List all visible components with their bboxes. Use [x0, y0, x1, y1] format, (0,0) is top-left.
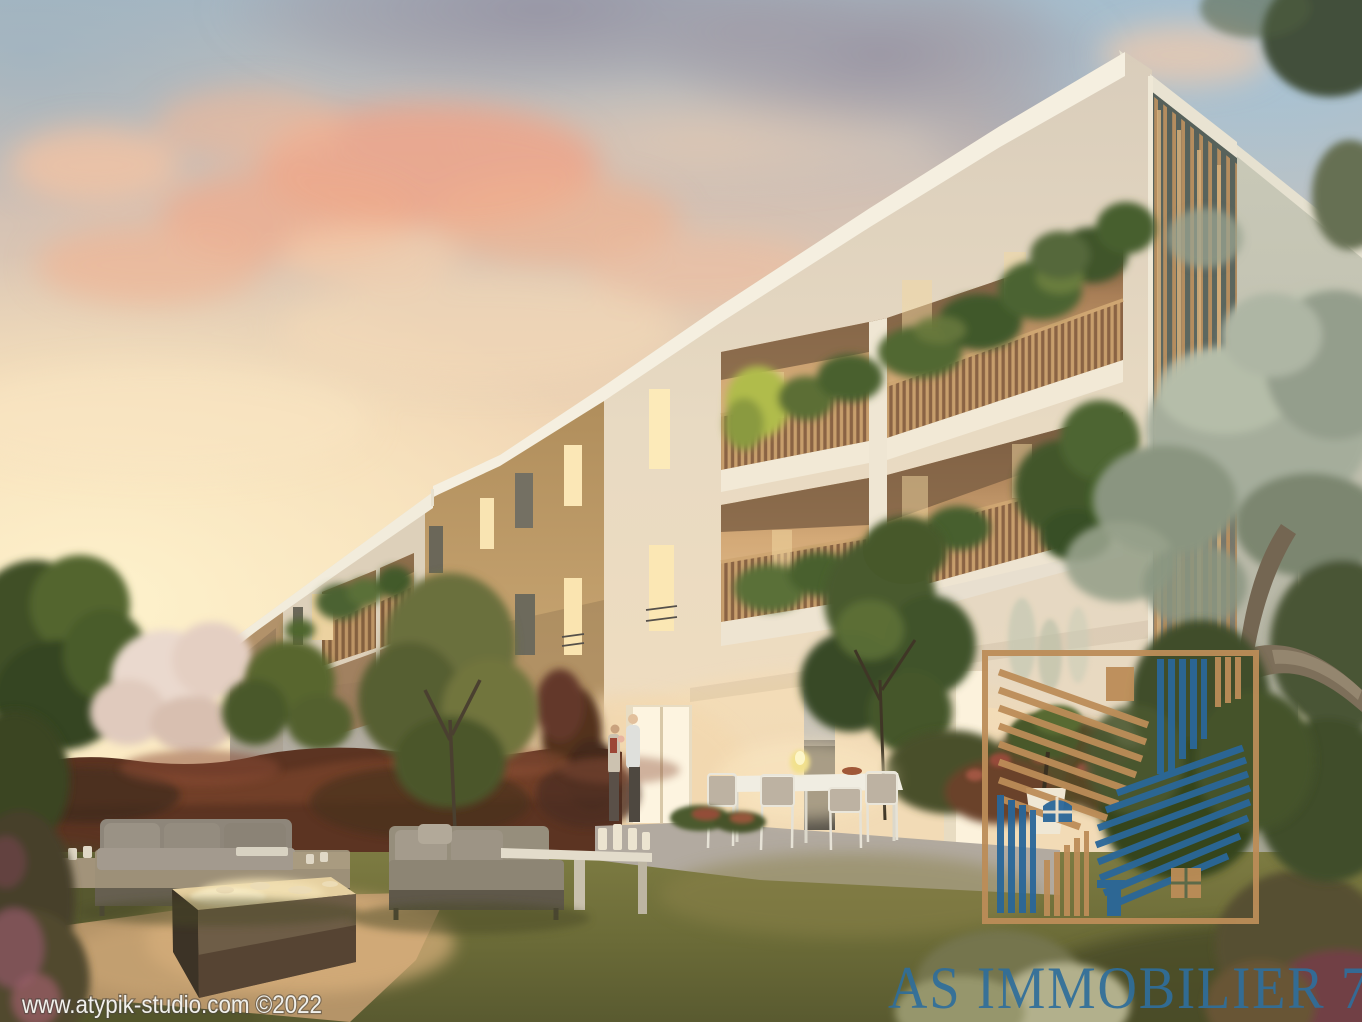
- svg-text:AS IMMOBILIER 7: AS IMMOBILIER 7: [888, 955, 1362, 1021]
- svg-text:www.atypik-studio.com ©2022: www.atypik-studio.com ©2022: [21, 991, 322, 1019]
